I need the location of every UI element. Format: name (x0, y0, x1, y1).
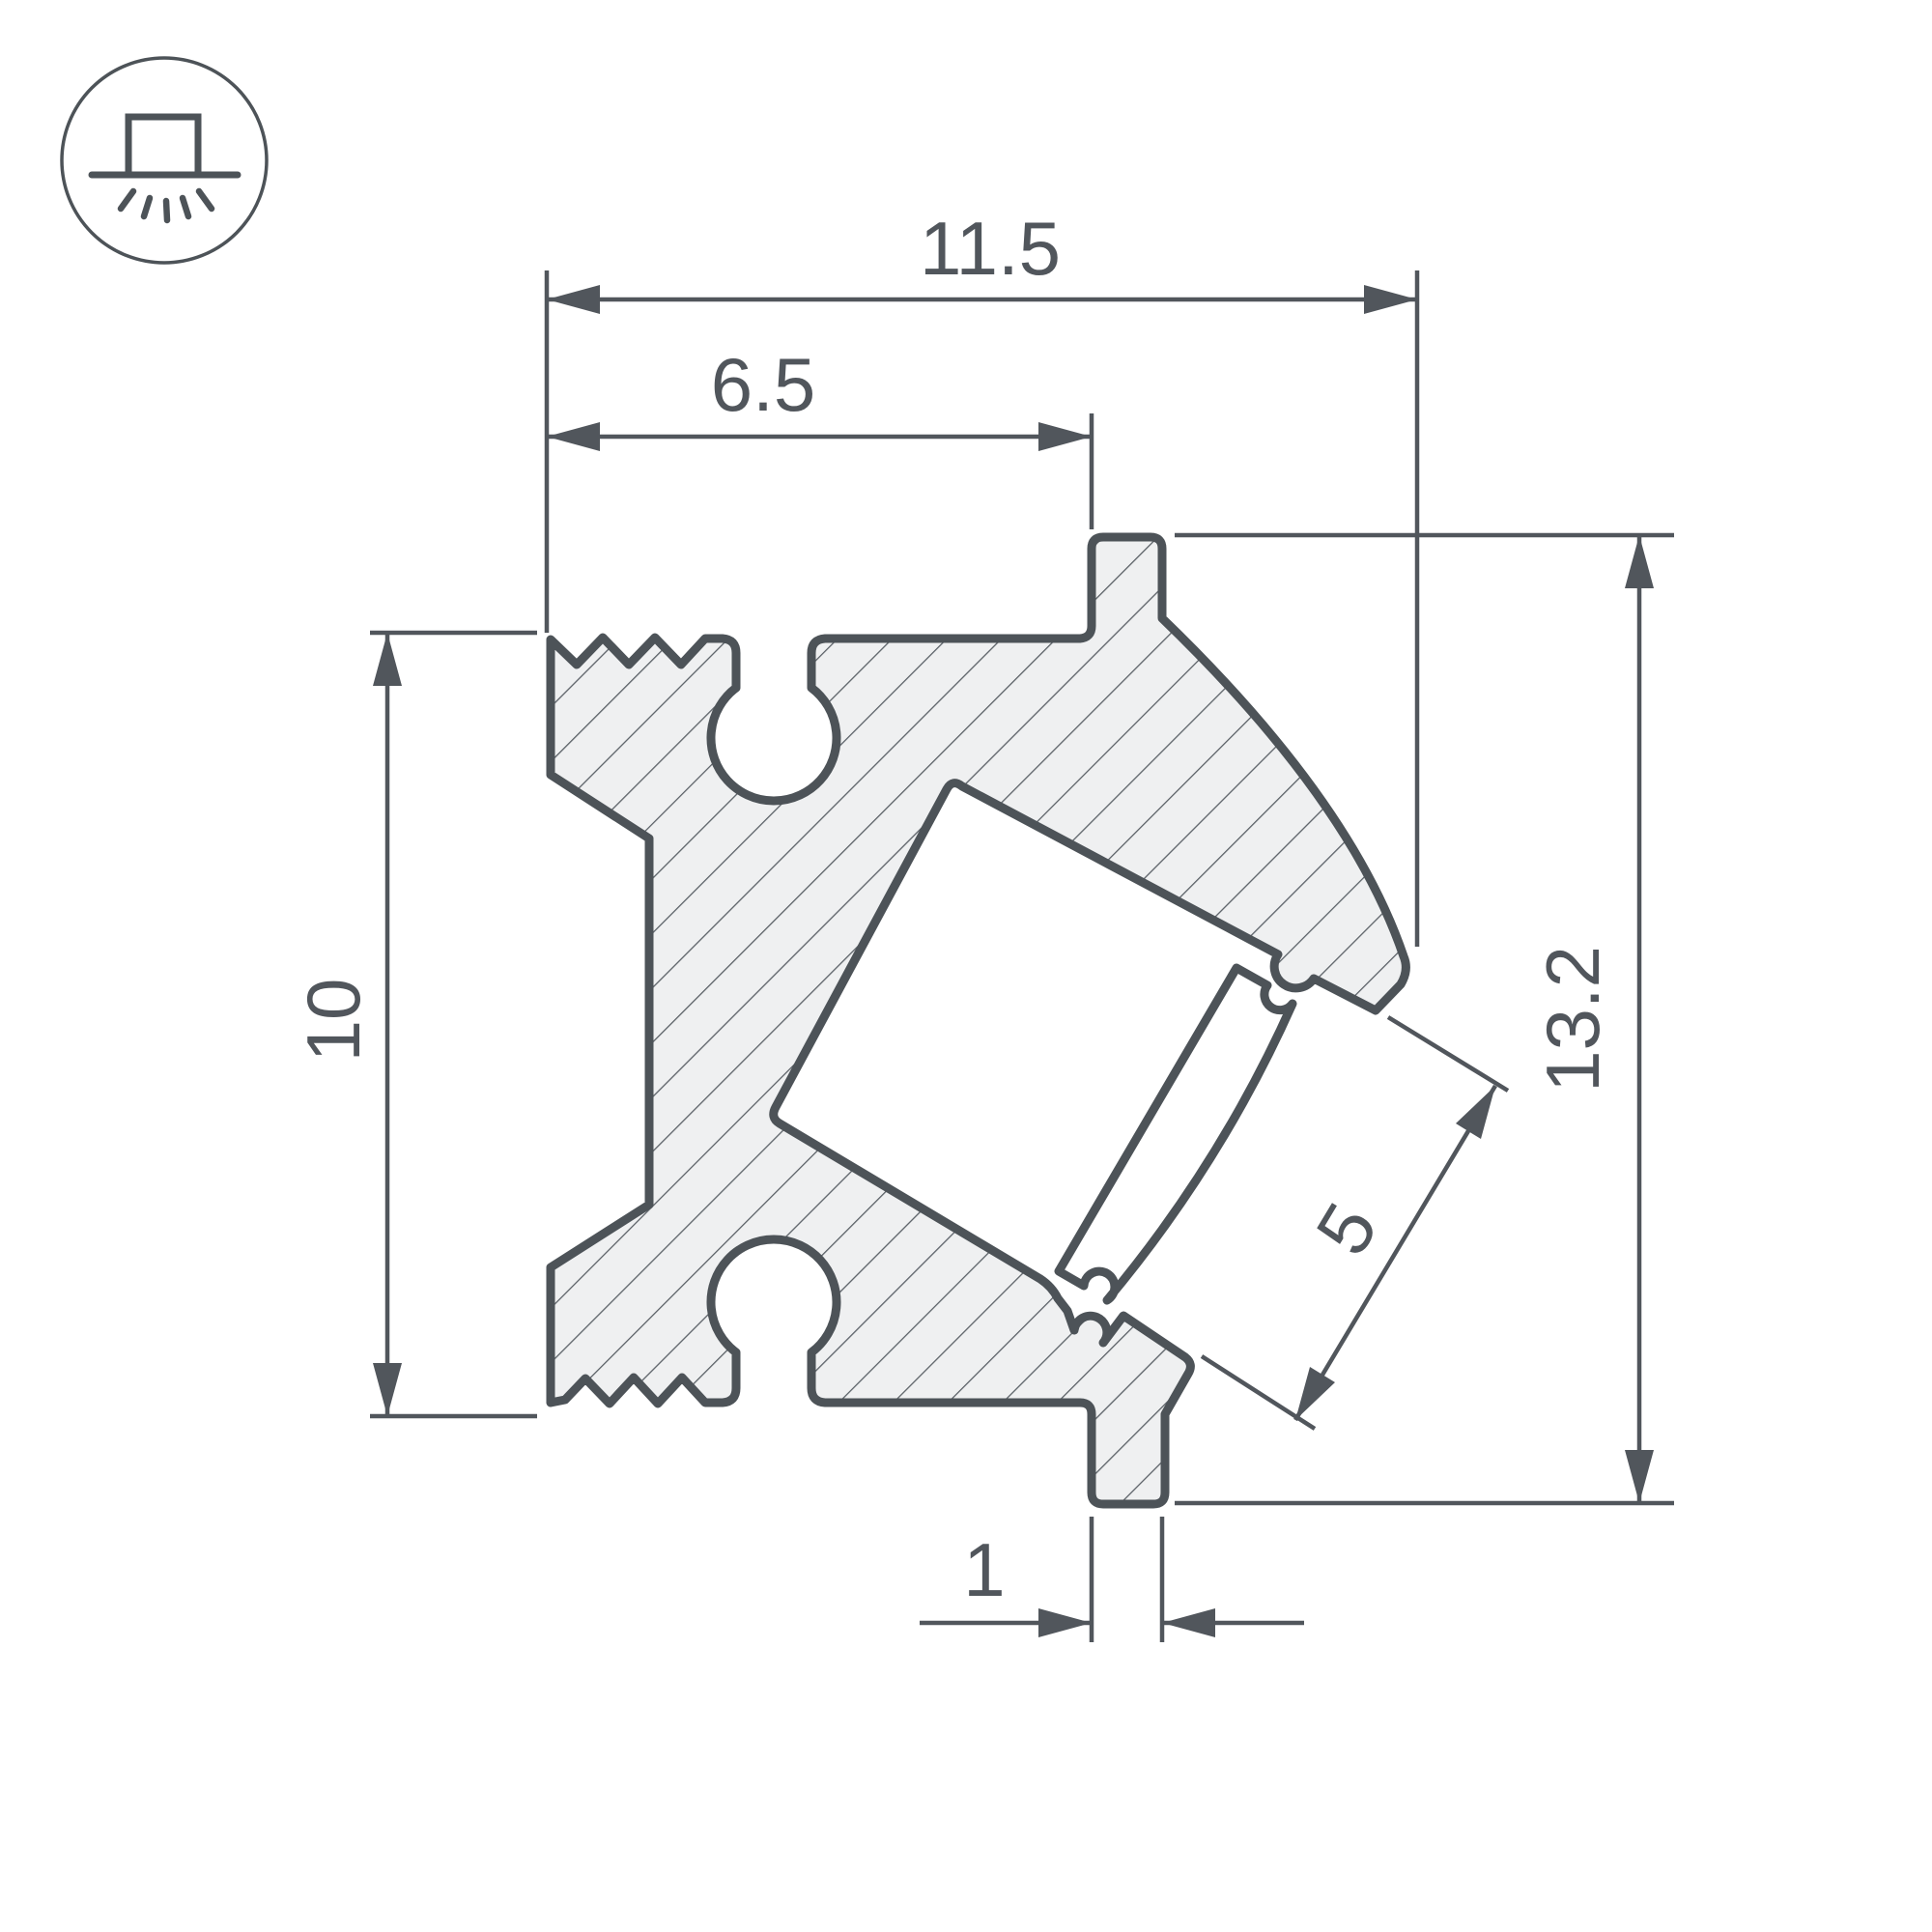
arrowhead (1364, 285, 1417, 314)
arrowhead (373, 1363, 402, 1416)
dimension-label-inner-width: 6.5 (711, 342, 815, 427)
led-strip-lens (1059, 968, 1293, 1300)
dimension-inner-width: 6.5 (547, 342, 1092, 529)
profile-drawing-canvas: 11.5 6.5 10 13.2 5 (0, 0, 1932, 1932)
icon-circle (62, 58, 267, 263)
dimension-foot-width: 1 (920, 1517, 1304, 1642)
dimension-label-left-height: 10 (291, 979, 376, 1063)
dimension-line (1295, 1086, 1495, 1420)
surface-mount-light-icon (62, 58, 267, 263)
dimension-label-strip-width: 5 (1299, 1189, 1394, 1269)
arrowhead (1162, 1608, 1215, 1637)
dimension-left-height: 10 (291, 633, 537, 1416)
arrowhead (1456, 1086, 1495, 1139)
arrowhead (547, 285, 600, 314)
dimension-label-total-width: 11.5 (920, 206, 1061, 291)
profile-body (551, 537, 1406, 1504)
arrowhead (1295, 1367, 1335, 1420)
arrowhead (373, 633, 402, 686)
arrowhead (1625, 535, 1654, 588)
dimension-label-foot-width: 1 (963, 1527, 1005, 1612)
dimension-label-total-height: 13.2 (1530, 946, 1615, 1093)
extension-line (1388, 1017, 1508, 1091)
arrowhead (1038, 422, 1092, 451)
arrowhead (1038, 1608, 1092, 1637)
arrowhead (1625, 1450, 1654, 1503)
technical-drawing-page: 11.5 6.5 10 13.2 5 (0, 0, 1932, 1932)
arrowhead (547, 422, 600, 451)
